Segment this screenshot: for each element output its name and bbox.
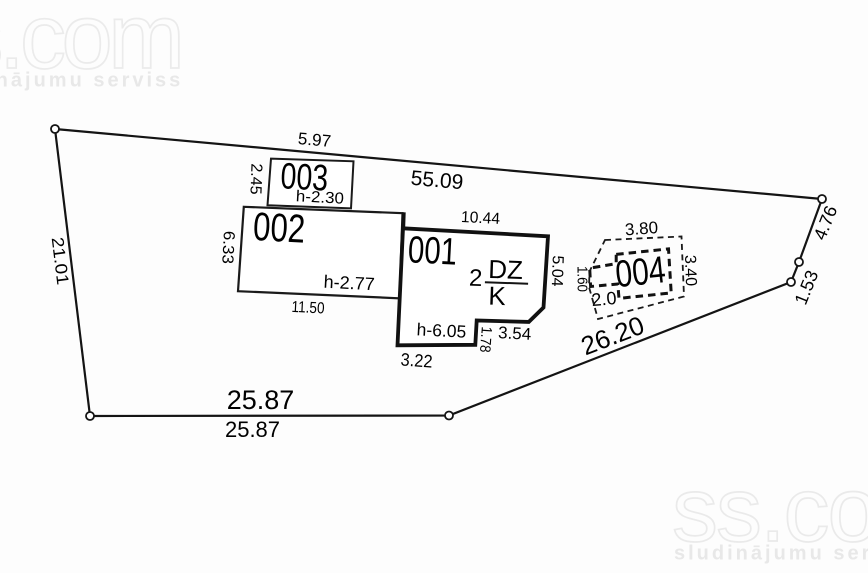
- svg-text:4.76: 4.76: [810, 203, 842, 243]
- svg-text:5.04: 5.04: [548, 255, 566, 287]
- svg-text:h-2.77: h-2.77: [323, 272, 375, 295]
- svg-text:sludinājumu serviss: sludinājumu serviss: [674, 543, 868, 565]
- svg-text:5.97: 5.97: [297, 129, 332, 151]
- svg-text:11.50: 11.50: [291, 299, 325, 318]
- svg-text:001: 001: [407, 229, 458, 274]
- svg-text:sludinājumu serviss: sludinājumu serviss: [0, 70, 183, 92]
- svg-text:3.22: 3.22: [400, 349, 433, 371]
- svg-text:3.40: 3.40: [681, 255, 699, 287]
- svg-text:26.20: 26.20: [577, 310, 649, 361]
- svg-text:2.0: 2.0: [591, 288, 618, 310]
- svg-text:55.09: 55.09: [410, 167, 464, 194]
- svg-text:2: 2: [469, 265, 483, 292]
- svg-text:6.33: 6.33: [218, 230, 237, 264]
- svg-text:25.87: 25.87: [227, 385, 295, 415]
- svg-text:K: K: [488, 281, 507, 312]
- svg-text:25.87: 25.87: [225, 417, 280, 442]
- svg-text:2.45: 2.45: [246, 163, 264, 195]
- svg-text:h-6.05: h-6.05: [416, 319, 467, 342]
- svg-text:h-2.30: h-2.30: [295, 188, 344, 207]
- svg-text:10.44: 10.44: [461, 209, 501, 228]
- svg-text:004: 004: [613, 249, 667, 296]
- svg-text:1.78: 1.78: [476, 326, 495, 353]
- svg-text:3.80: 3.80: [624, 218, 658, 239]
- svg-text:1.60: 1.60: [573, 266, 590, 292]
- svg-text:002: 002: [252, 205, 306, 252]
- svg-text:3.54: 3.54: [498, 323, 532, 344]
